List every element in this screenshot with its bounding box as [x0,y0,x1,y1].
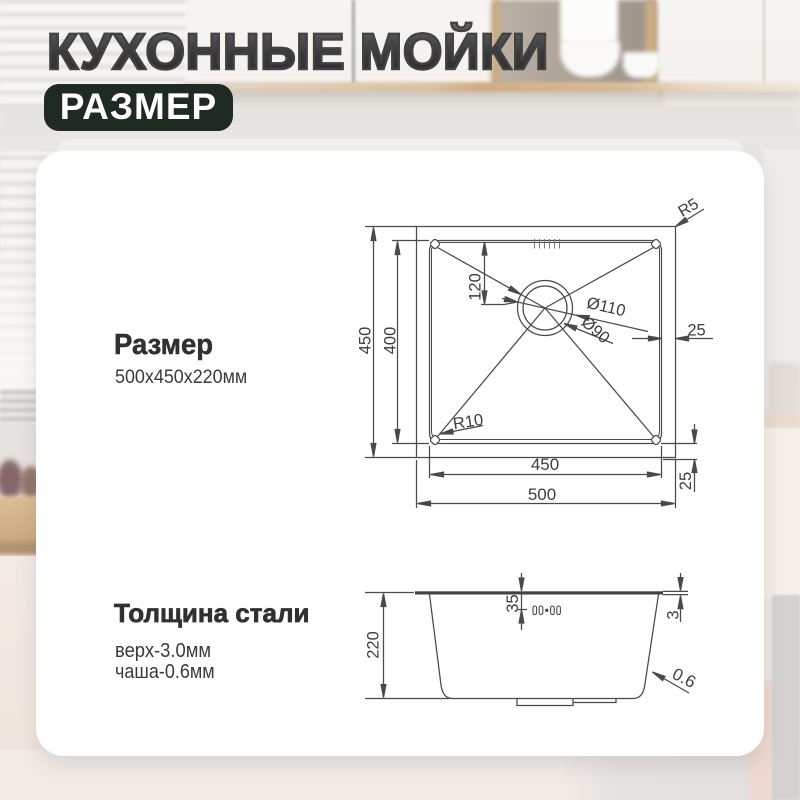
svg-text:120: 120 [466,273,484,301]
svg-text:450: 450 [531,455,559,474]
svg-text:R10: R10 [452,411,485,434]
svg-text:220: 220 [364,631,382,659]
svg-text:25: 25 [677,472,695,490]
svg-text:500: 500 [528,485,556,504]
svg-text:0.6: 0.6 [669,664,699,692]
svg-text:450: 450 [356,327,374,355]
svg-text:25: 25 [687,322,705,340]
svg-text:400: 400 [381,327,399,355]
svg-text:35: 35 [504,594,522,612]
svg-text:3: 3 [664,610,682,619]
svg-text:R5: R5 [676,196,702,221]
